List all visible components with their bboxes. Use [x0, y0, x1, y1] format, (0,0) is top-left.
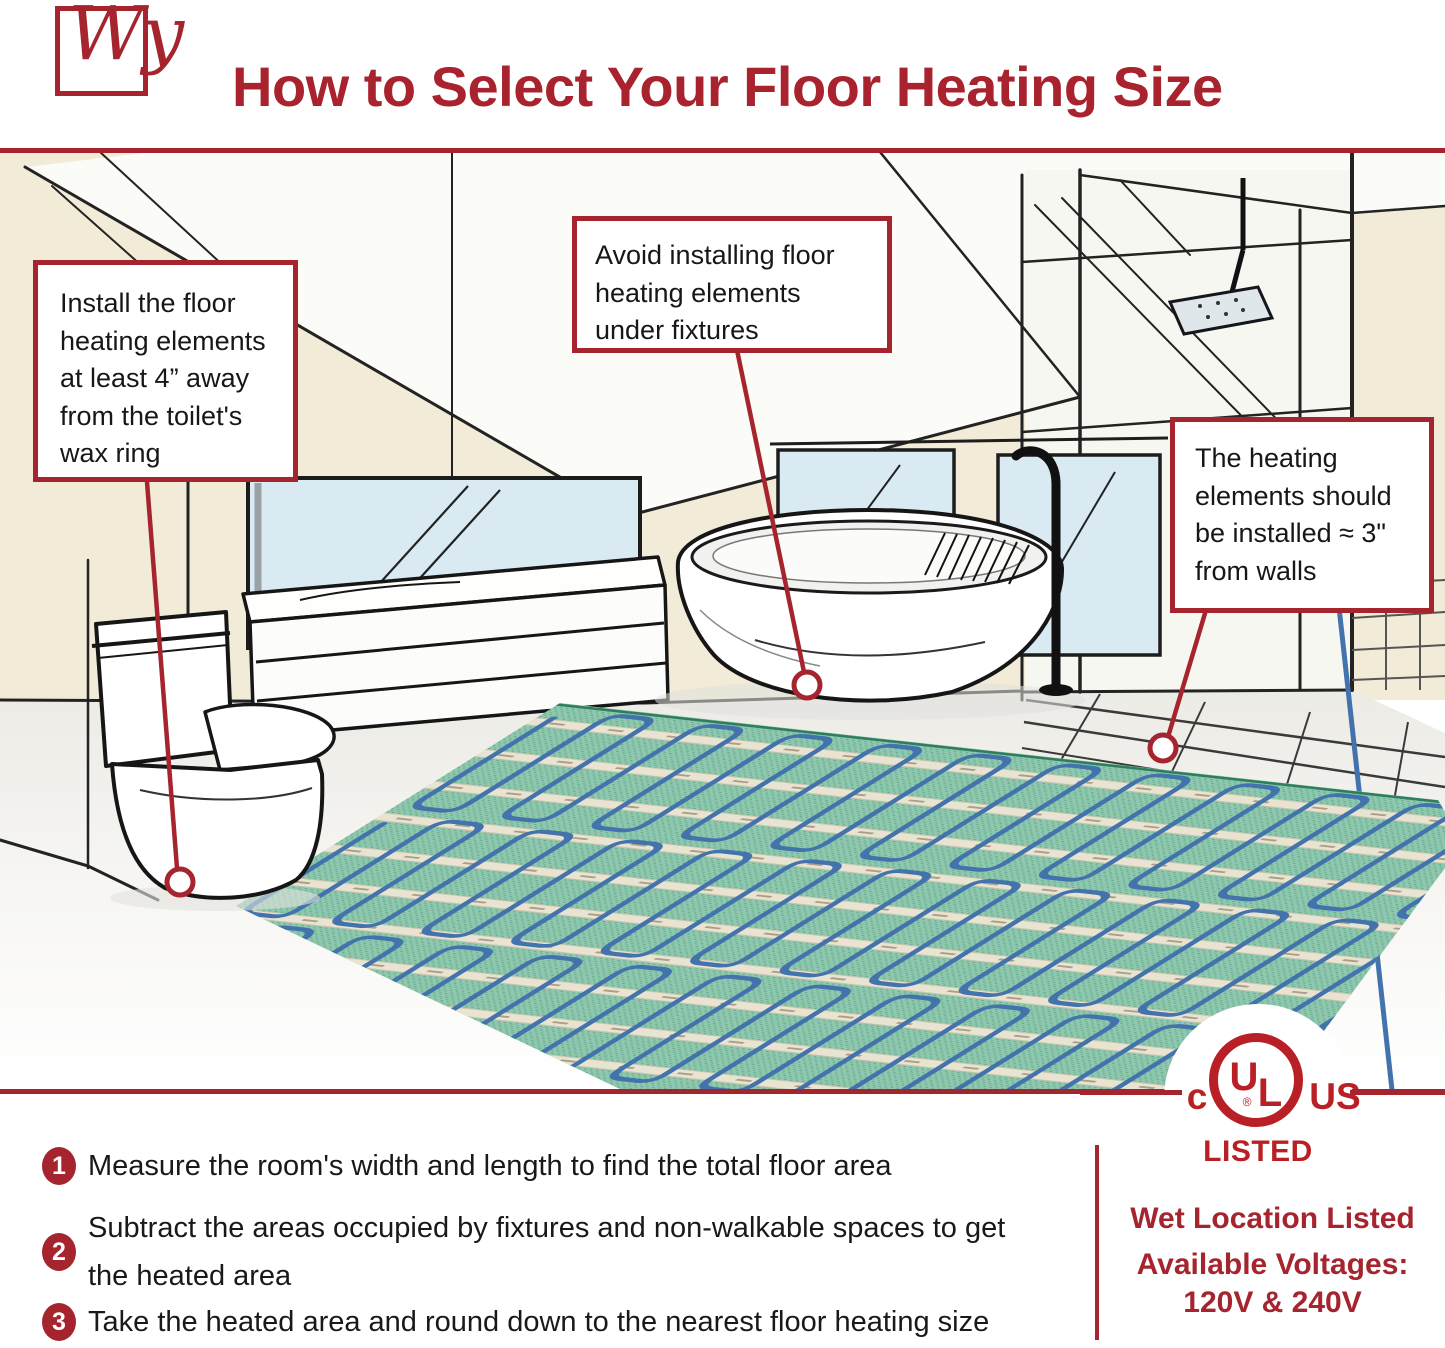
ul-us: US: [1309, 1076, 1360, 1117]
step-number-badge: 2: [42, 1233, 76, 1271]
bathtub: [655, 510, 1085, 720]
step-number-badge: 1: [42, 1147, 76, 1185]
callout-toilet-wax-ring: Install the floor heating elements at le…: [33, 260, 298, 482]
step-text: Subtract the areas occupied by fixtures …: [88, 1204, 1028, 1300]
step-row-1: 1 Measure the room's width and length to…: [42, 1142, 892, 1190]
step-text: Measure the room's width and length to f…: [88, 1142, 892, 1190]
infographic-page: U L ® c US LISTED Wy How to Select Your …: [0, 0, 1445, 1348]
brand-logo-monogram: Wy: [68, 0, 184, 71]
step-row-3: 3 Take the heated area and round down to…: [42, 1298, 989, 1346]
brand-logo: Wy: [55, 6, 148, 96]
available-voltages-label: Available Voltages:: [1100, 1248, 1445, 1282]
ul-listed-label: LISTED: [1203, 1135, 1313, 1168]
footer-divider: [1095, 1145, 1099, 1340]
marker-mat-edge: [1150, 735, 1176, 761]
ul-registered-symbol: ®: [1243, 1095, 1252, 1109]
voltages-value: 120V & 240V: [1100, 1286, 1445, 1320]
callout-distance-from-walls: The heating elements should be installed…: [1170, 417, 1434, 613]
marker-tub: [794, 672, 820, 698]
wet-location-label: Wet Location Listed: [1100, 1202, 1445, 1236]
ul-c: c: [1187, 1076, 1208, 1117]
step-row-2: 2 Subtract the areas occupied by fixture…: [42, 1204, 1028, 1300]
page-title: How to Select Your Floor Heating Size: [232, 54, 1223, 119]
illustration-top-border: [0, 148, 1445, 153]
ul-letter-u: U: [1230, 1055, 1259, 1099]
ul-letter-l: L: [1258, 1071, 1282, 1115]
step-number-badge: 3: [42, 1303, 76, 1341]
callout-avoid-fixtures: Avoid installing floor heating elements …: [572, 216, 892, 353]
step-text: Take the heated area and round down to t…: [88, 1298, 989, 1346]
marker-toilet: [167, 869, 193, 895]
